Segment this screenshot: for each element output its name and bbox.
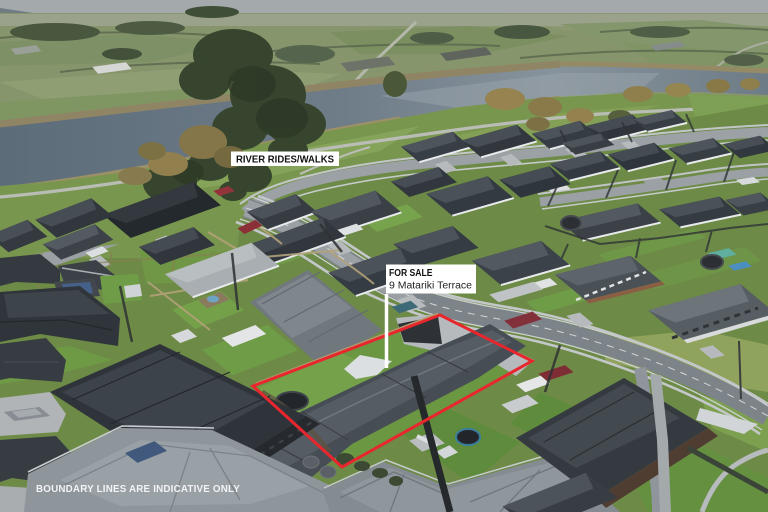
svg-text:9 Matariki Terrace: 9 Matariki Terrace [389,281,472,292]
svg-text:RIVER RIDES/WALKS: RIVER RIDES/WALKS [236,154,334,166]
svg-text:BOUNDARY LINES ARE INDICATIVE: BOUNDARY LINES ARE INDICATIVE ONLY [36,484,240,495]
svg-text:FOR SALE: FOR SALE [389,267,433,279]
